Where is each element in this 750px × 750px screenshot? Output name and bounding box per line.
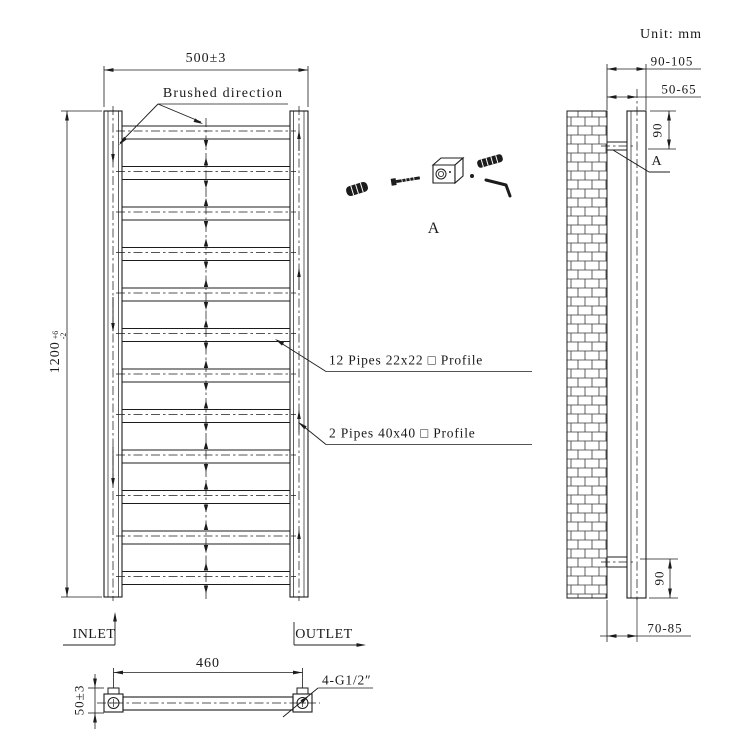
small-pipes-callout-label: 12 Pipes 22x22 □ Profile	[329, 353, 483, 367]
detail-marker-label: A	[651, 155, 662, 169]
detail-a-label: A	[428, 221, 441, 237]
allen-key-icon	[486, 180, 510, 196]
screw-icon	[391, 174, 421, 185]
height-dimension-label: 1200+6-2	[49, 331, 69, 374]
unit-note: Unit: mm	[640, 28, 702, 42]
wall-to-center-top-dimension-label: 50-65	[661, 83, 696, 96]
brushed-direction-label: Brushed direction	[163, 87, 283, 101]
bottom-bracket-dimension-label: 90	[653, 571, 666, 586]
wall-plug-icon	[476, 154, 503, 169]
inlet-label: INLET	[73, 628, 116, 642]
mounting-hardware-detail	[345, 154, 510, 197]
wall-to-front-dimension-label: 90-105	[651, 55, 694, 68]
washer-dot-icon	[470, 174, 474, 178]
technical-drawing-page: Unit: mm 500±3 Brushed direction 1200+6-…	[0, 0, 750, 750]
bracket-block-icon	[433, 158, 463, 183]
tolerance-minus: -2	[61, 331, 69, 340]
outlet-label: OUTLET	[295, 628, 352, 642]
top-bracket-dimension-label: 90	[651, 123, 664, 138]
grub-screw-icon	[345, 181, 369, 197]
port-offset-dimension-label: 50±3	[73, 685, 86, 716]
wall-to-center-bottom-dimension-label: 70-85	[647, 622, 682, 635]
width-dimension-label: 500±3	[186, 52, 227, 66]
thread-spec-label: 4-G1/2″	[322, 673, 371, 687]
side-view	[600, 64, 701, 642]
side-view-wall	[567, 111, 607, 598]
height-dim-tolerance: +6-2	[52, 331, 69, 340]
large-pipes-callout-label: 2 Pipes 40x40 □ Profile	[329, 426, 476, 440]
ports-spacing-dimension-label: 460	[196, 657, 220, 671]
height-dim-value: 1200	[48, 341, 63, 373]
